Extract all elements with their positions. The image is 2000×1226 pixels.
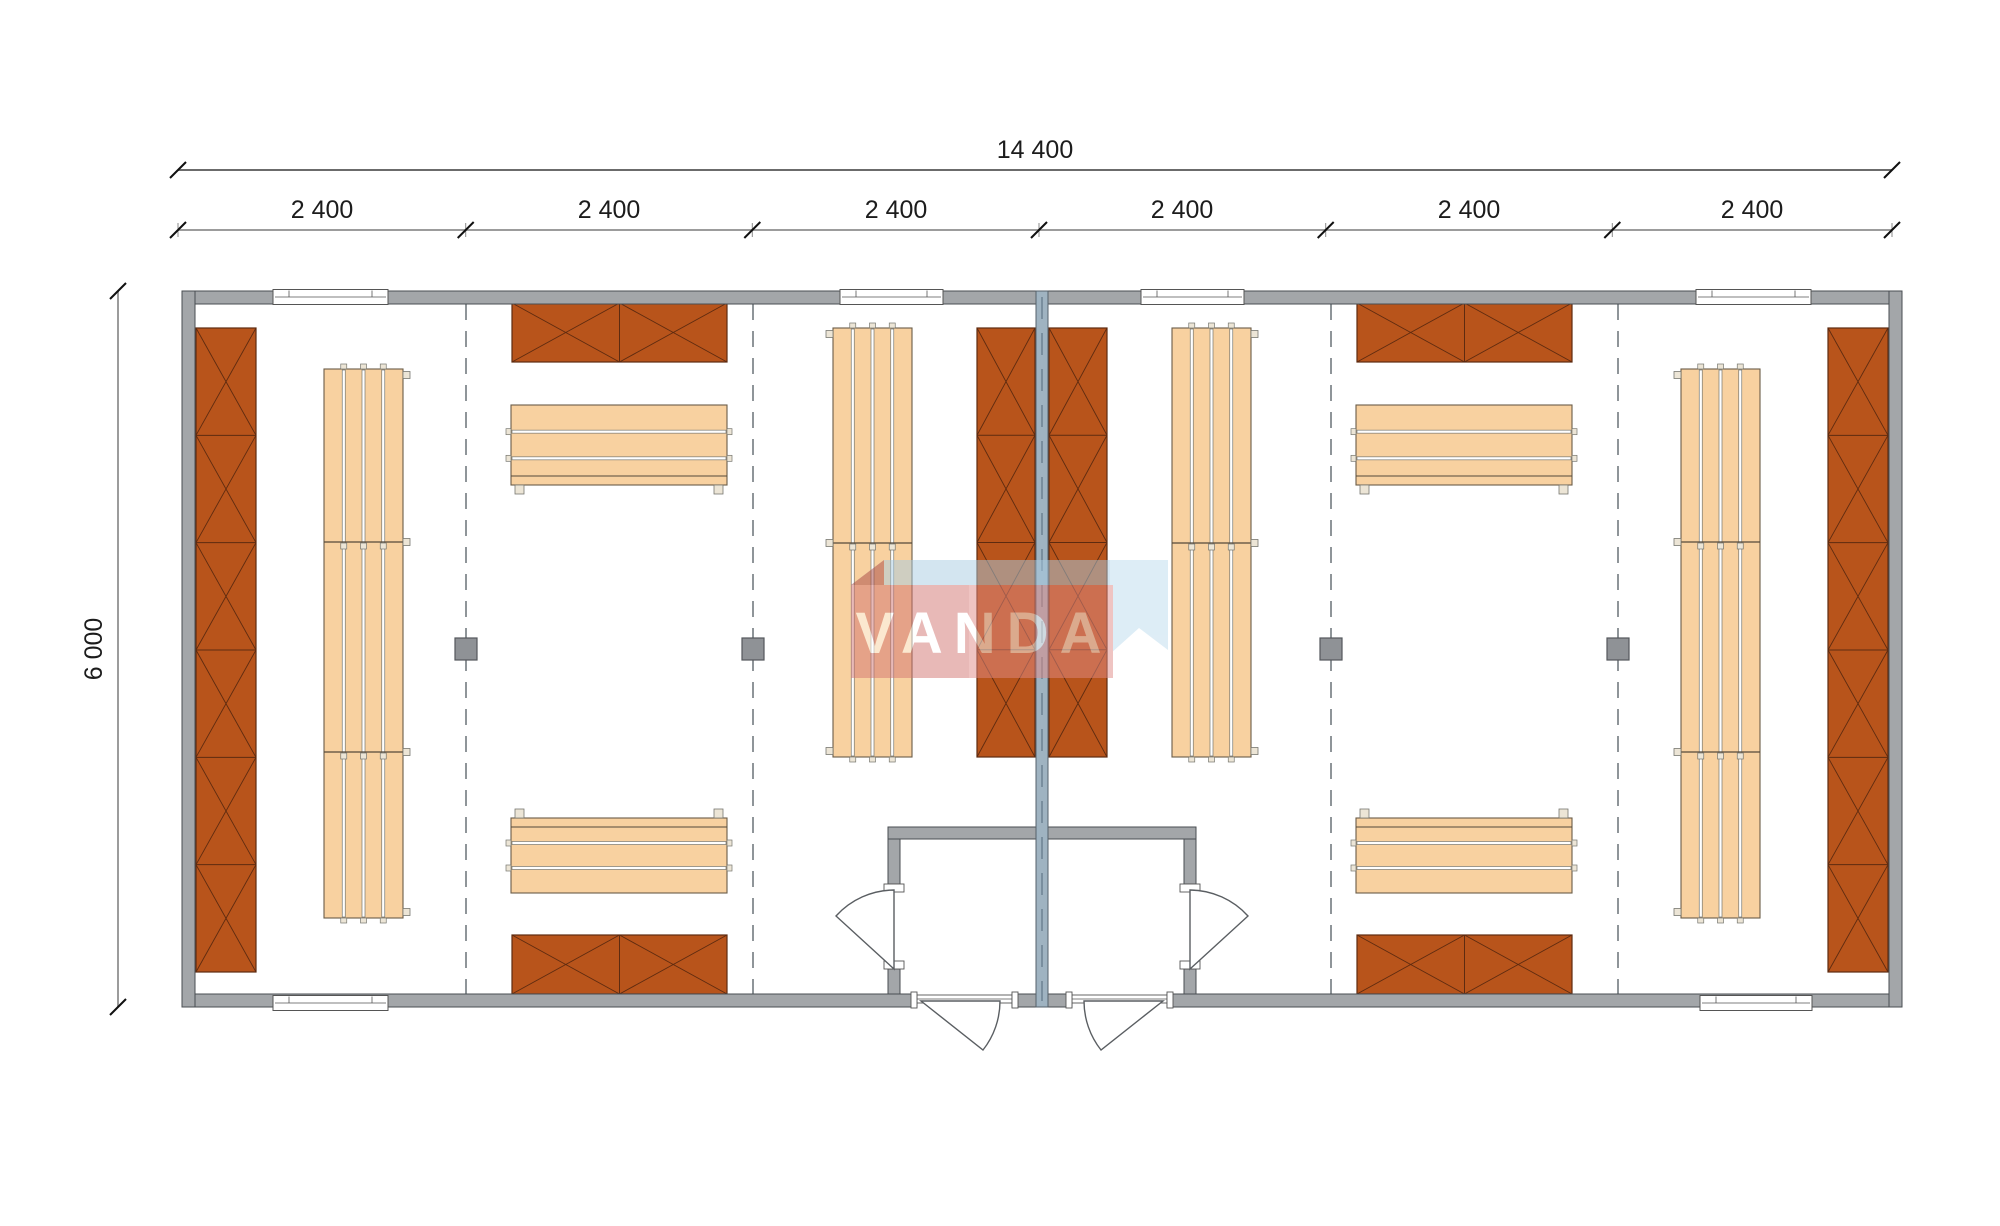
bench-horizontal bbox=[506, 405, 732, 494]
bench-plank-gap bbox=[512, 457, 726, 460]
bench-tab bbox=[1351, 865, 1356, 871]
dimension-module-label: 2 400 bbox=[1438, 196, 1501, 224]
bench-side-tab bbox=[1674, 909, 1681, 916]
vestibule-wall bbox=[888, 839, 900, 884]
bench-tab bbox=[506, 865, 511, 871]
bench-plank-gap bbox=[512, 842, 726, 845]
bench-plank-gap bbox=[342, 370, 345, 917]
bench-plank-gap bbox=[1357, 867, 1571, 870]
door-jamb bbox=[1066, 992, 1072, 1008]
window bbox=[273, 996, 388, 1011]
bench-horizontal bbox=[1351, 405, 1577, 494]
bench-foot bbox=[714, 485, 723, 494]
bench-tab bbox=[1351, 840, 1356, 846]
x-panel bbox=[512, 935, 727, 994]
bench-foot bbox=[1559, 485, 1568, 494]
bench-tab bbox=[850, 757, 856, 762]
door-jamb bbox=[911, 992, 917, 1008]
bench-body bbox=[511, 405, 727, 485]
bench-tab bbox=[870, 323, 876, 328]
bench-side-tab bbox=[826, 331, 833, 338]
bench-tab bbox=[506, 429, 511, 435]
bench-plank-gap bbox=[1699, 370, 1702, 917]
bench-tab bbox=[361, 753, 367, 759]
bench-foot bbox=[515, 809, 524, 818]
bench-tab bbox=[380, 364, 386, 369]
window bbox=[1141, 290, 1244, 305]
bench-plank-gap bbox=[512, 867, 726, 870]
bench-side-tab bbox=[1251, 331, 1258, 338]
bench-tab bbox=[1572, 429, 1577, 435]
bench-foot bbox=[714, 809, 723, 818]
x-panel bbox=[1828, 328, 1888, 972]
wall-left bbox=[182, 291, 195, 1007]
bench-vertical bbox=[1674, 364, 1760, 923]
window bbox=[273, 290, 388, 305]
bench-plank-gap bbox=[1739, 370, 1742, 917]
bench-tab bbox=[341, 543, 347, 549]
wall-right bbox=[1889, 291, 1902, 1007]
floor-plan-page: 14 4002 4002 4002 4002 4002 4002 4006 00… bbox=[0, 0, 2000, 1226]
vestibule-wall bbox=[1184, 969, 1196, 994]
bench-tab bbox=[506, 455, 511, 461]
bench-tab bbox=[380, 543, 386, 549]
bench-tab bbox=[341, 364, 347, 369]
vestibule-wall bbox=[1184, 839, 1196, 884]
bench-tab bbox=[380, 918, 386, 923]
bench-tab bbox=[850, 544, 856, 550]
x-panel bbox=[1049, 328, 1107, 757]
bench-plank-gap bbox=[382, 370, 385, 917]
bench-tab bbox=[361, 543, 367, 549]
door-swing bbox=[836, 890, 894, 969]
watermark-ribbon-flag bbox=[1110, 560, 1168, 654]
x-panel bbox=[977, 328, 1035, 757]
bench-tab bbox=[1737, 918, 1743, 923]
bench-tab bbox=[1737, 543, 1743, 549]
bench-tab bbox=[727, 455, 732, 461]
bench-plank-gap bbox=[1357, 457, 1571, 460]
bench-tab bbox=[341, 753, 347, 759]
bench-tab bbox=[850, 323, 856, 328]
bench-body bbox=[1356, 818, 1572, 893]
bench-side-tab bbox=[826, 748, 833, 755]
bench-side-tab bbox=[403, 372, 410, 379]
bench-tab bbox=[727, 865, 732, 871]
bench-body bbox=[511, 818, 727, 893]
bench-tab bbox=[506, 840, 511, 846]
bench-tab bbox=[1718, 543, 1724, 549]
bench-tab bbox=[727, 840, 732, 846]
window bbox=[1696, 290, 1811, 305]
bench-tab bbox=[889, 544, 895, 550]
bench-side-tab bbox=[403, 539, 410, 546]
bench-tab bbox=[889, 757, 895, 762]
dimension-total-label: 14 400 bbox=[997, 136, 1073, 164]
x-panel bbox=[512, 303, 727, 362]
bench-plank-gap bbox=[362, 370, 365, 917]
x-panel bbox=[1357, 303, 1572, 362]
bench-tab bbox=[1737, 364, 1743, 369]
bench-tab bbox=[341, 918, 347, 923]
post bbox=[1607, 638, 1629, 660]
bench-tab bbox=[361, 918, 367, 923]
bench-vertical bbox=[324, 364, 410, 923]
bench-tab bbox=[1572, 840, 1577, 846]
post bbox=[1320, 638, 1342, 660]
bench-side-tab bbox=[826, 540, 833, 547]
bench-vertical bbox=[826, 323, 912, 762]
bench-tab bbox=[870, 544, 876, 550]
bench-tab bbox=[1698, 918, 1704, 923]
bench-tab bbox=[1718, 753, 1724, 759]
bench-tab bbox=[1228, 323, 1234, 328]
bench-tab bbox=[1737, 753, 1743, 759]
bench-plank-gap bbox=[1719, 370, 1722, 917]
bench-tab bbox=[1698, 753, 1704, 759]
window bbox=[840, 290, 943, 305]
bench-side-tab bbox=[1674, 539, 1681, 546]
door-jamb bbox=[1012, 992, 1018, 1008]
bench-tab bbox=[380, 753, 386, 759]
bench-tab bbox=[1572, 865, 1577, 871]
bench-side-tab bbox=[1251, 540, 1258, 547]
bench-tab bbox=[1351, 455, 1356, 461]
dimension-module-label: 2 400 bbox=[291, 196, 354, 224]
x-panel bbox=[196, 328, 256, 972]
dimension-module-label: 2 400 bbox=[1151, 196, 1214, 224]
bench-plank-gap bbox=[1357, 842, 1571, 845]
x-panel bbox=[1357, 935, 1572, 994]
bench-tab bbox=[870, 757, 876, 762]
dimension-height-label: 6 000 bbox=[80, 618, 108, 681]
dimension-module-label: 2 400 bbox=[578, 196, 641, 224]
bench-tab bbox=[1189, 757, 1195, 762]
bench-side-tab bbox=[1674, 749, 1681, 756]
post bbox=[455, 638, 477, 660]
bench-foot bbox=[1559, 809, 1568, 818]
dimension-module-label: 2 400 bbox=[865, 196, 928, 224]
bench-body bbox=[1356, 405, 1572, 485]
bench-horizontal bbox=[1351, 809, 1577, 893]
door-swing bbox=[921, 1001, 1000, 1050]
bench-foot bbox=[1360, 485, 1369, 494]
watermark: VANDA bbox=[851, 560, 1168, 678]
post bbox=[742, 638, 764, 660]
bench-tab bbox=[361, 364, 367, 369]
bench-tab bbox=[889, 323, 895, 328]
watermark-text: VANDA bbox=[856, 601, 1113, 666]
bench-tab bbox=[727, 429, 732, 435]
bench-side-tab bbox=[1251, 748, 1258, 755]
bench-tab bbox=[1189, 544, 1195, 550]
bench-tab bbox=[1228, 544, 1234, 550]
bench-tab bbox=[1209, 757, 1215, 762]
bench-tab bbox=[1572, 455, 1577, 461]
bench-tab bbox=[1718, 364, 1724, 369]
bench-tab bbox=[1351, 429, 1356, 435]
bench-tab bbox=[1698, 364, 1704, 369]
bench-plank-gap bbox=[1357, 430, 1571, 433]
bench-foot bbox=[515, 485, 524, 494]
bench-tab bbox=[1189, 323, 1195, 328]
bench-side-tab bbox=[403, 749, 410, 756]
bench-plank-gap bbox=[512, 430, 726, 433]
bench-tab bbox=[1718, 918, 1724, 923]
bench-tab bbox=[1209, 323, 1215, 328]
bench-side-tab bbox=[1674, 372, 1681, 379]
bench-horizontal bbox=[506, 809, 732, 893]
bench-tab bbox=[1698, 543, 1704, 549]
door-jamb bbox=[1167, 992, 1173, 1008]
dimension-module-label: 2 400 bbox=[1721, 196, 1784, 224]
door-swing bbox=[1190, 890, 1248, 969]
bench-tab bbox=[1228, 757, 1234, 762]
bench-vertical bbox=[1172, 323, 1258, 762]
bench-side-tab bbox=[403, 909, 410, 916]
bench-foot bbox=[1360, 809, 1369, 818]
window bbox=[1700, 996, 1812, 1011]
door-swing bbox=[1084, 1001, 1163, 1050]
vestibule-wall bbox=[888, 969, 900, 994]
bench-tab bbox=[1209, 544, 1215, 550]
plan-drawing: 14 4002 4002 4002 4002 4002 4002 4006 00… bbox=[0, 0, 2000, 1226]
